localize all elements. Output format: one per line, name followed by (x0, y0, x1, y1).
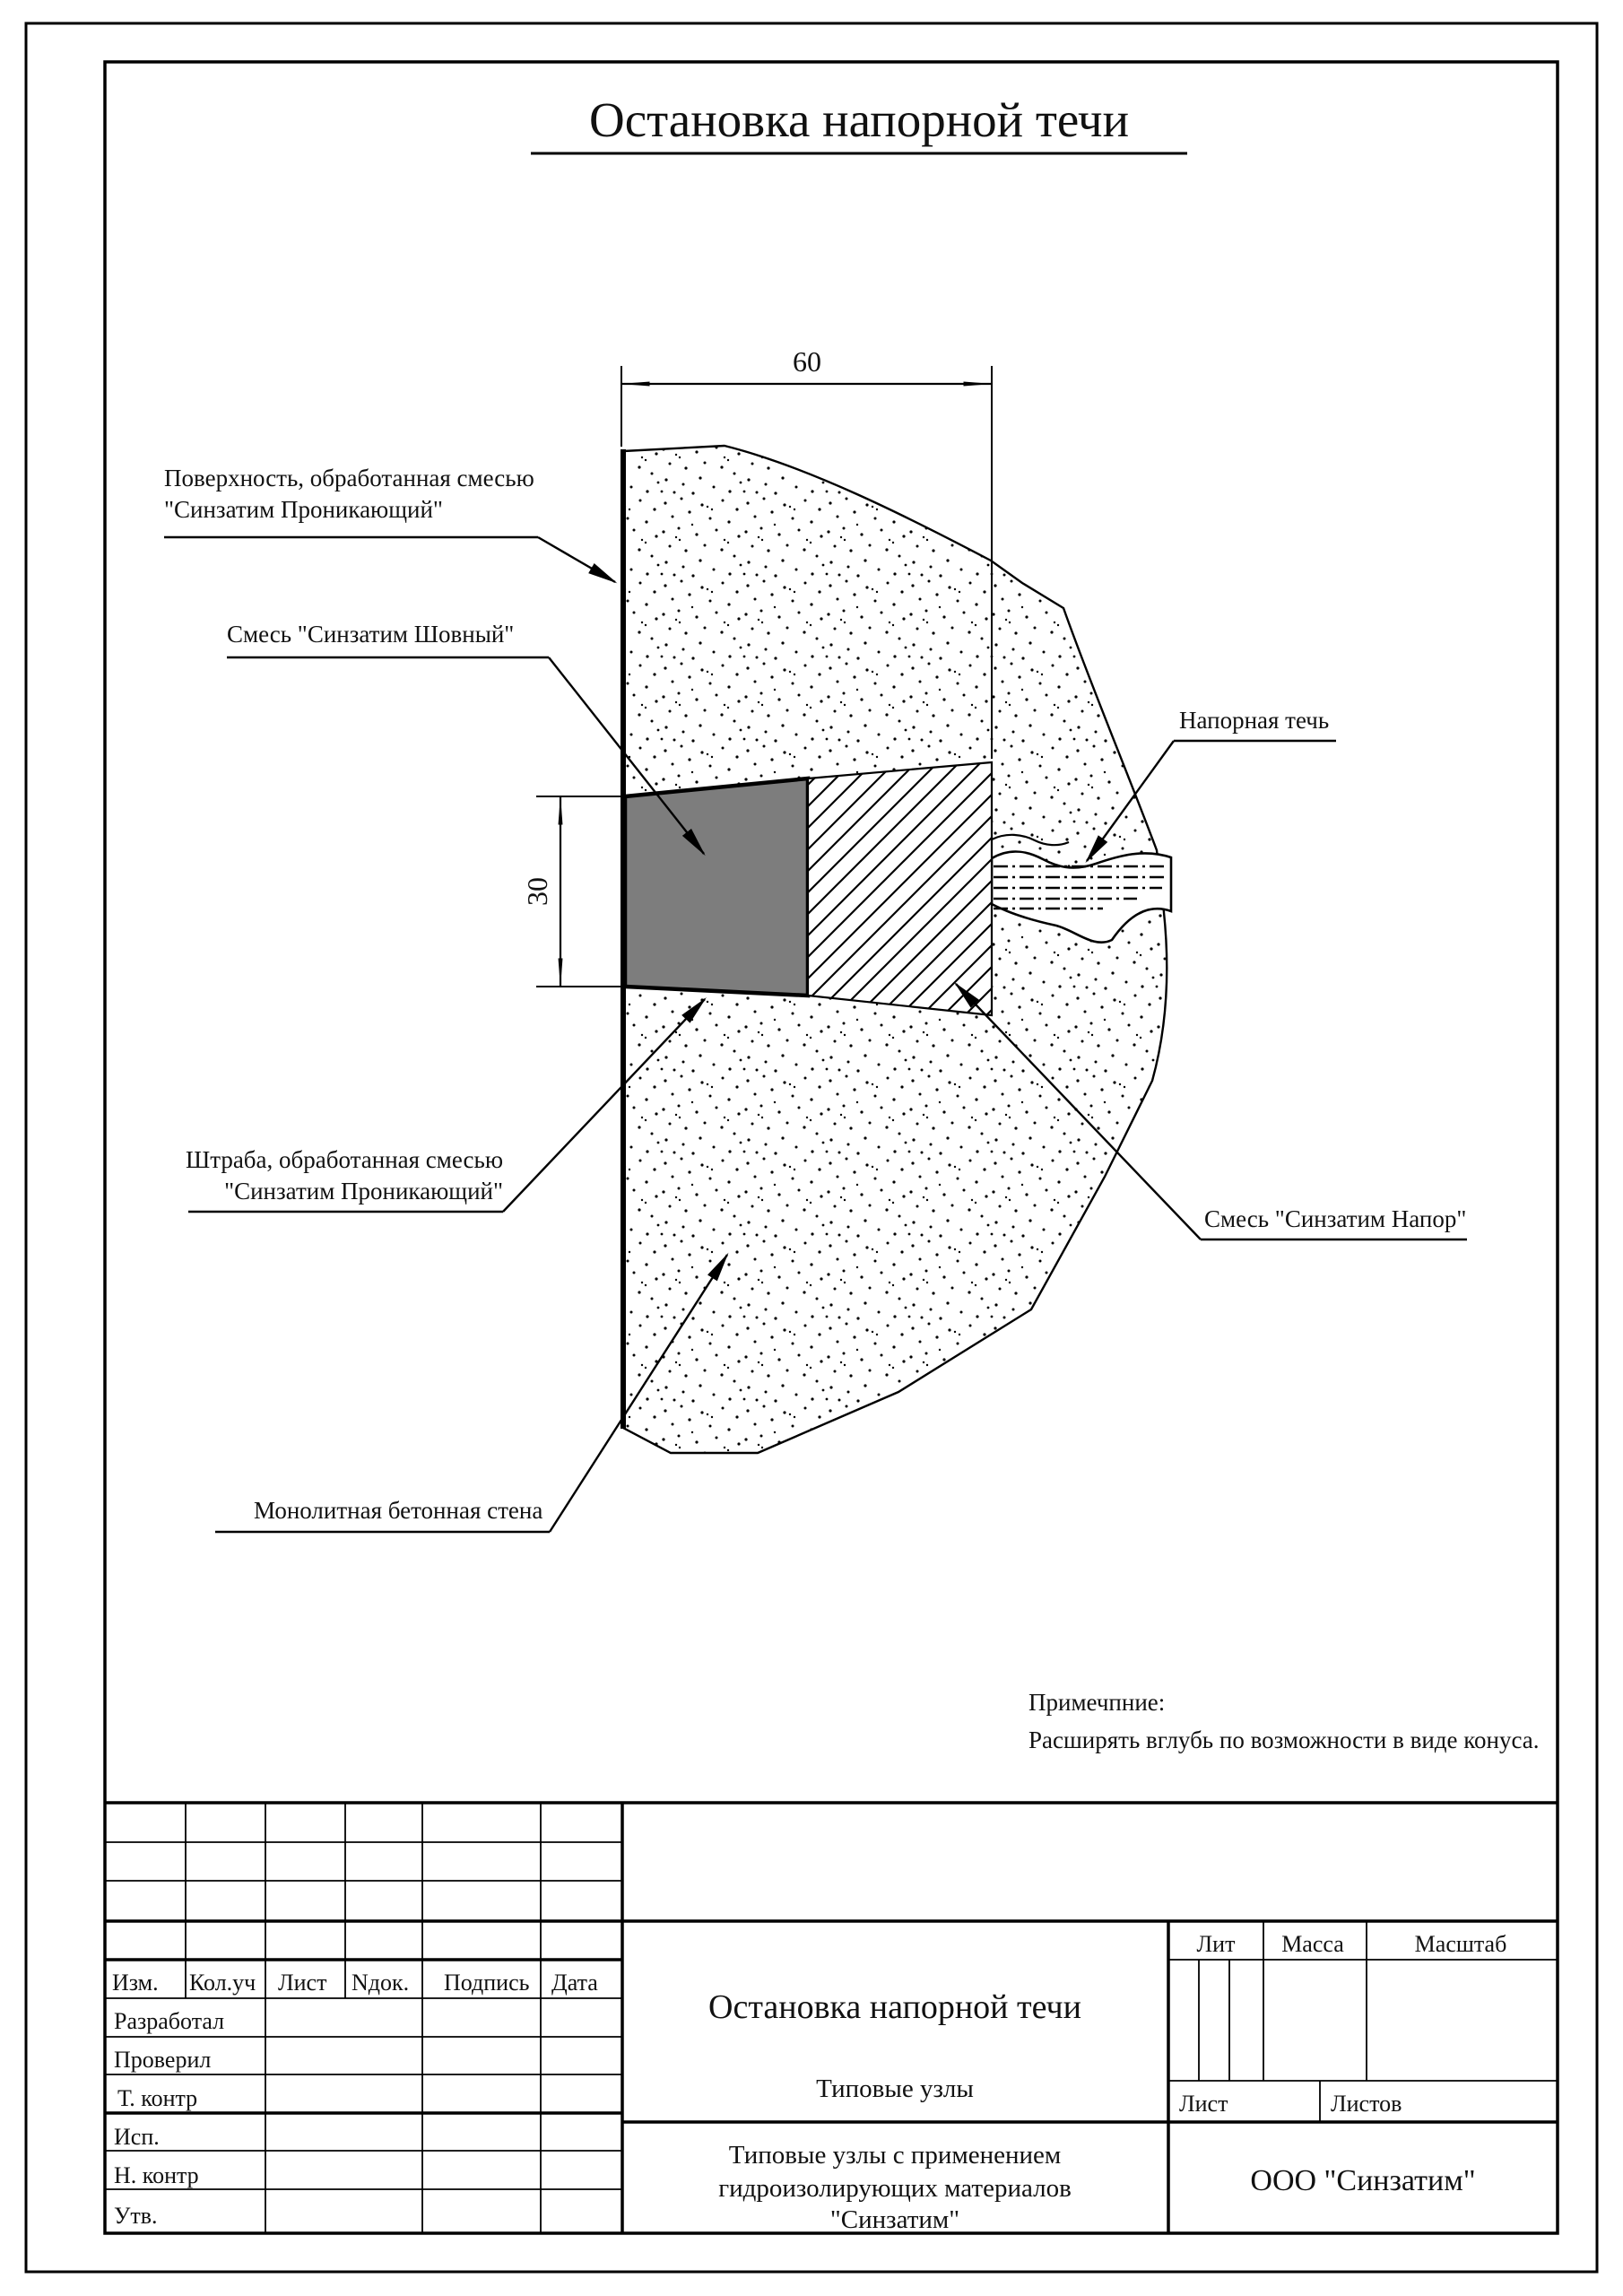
col-ndok: Nдок. (352, 1970, 409, 1996)
doc-subtitle: Типовые узлы (816, 2074, 974, 2103)
pressure-mix-hatch (808, 762, 992, 1015)
lit-label: Лит (1197, 1931, 1236, 1957)
page-title-group: Остановка напорной течи (531, 92, 1187, 153)
label-pressure-mix-text: Смесь "Синзатим Напор" (1204, 1205, 1466, 1232)
dim-60-value: 60 (793, 345, 821, 378)
page-title: Остановка напорной течи (589, 92, 1129, 147)
row-utv: Утв. (114, 2203, 158, 2229)
row-tkontr: Т. контр (117, 2085, 197, 2111)
project-line3: "Синзатим" (830, 2205, 959, 2234)
massa-label: Масса (1281, 1931, 1344, 1957)
col-data: Дата (551, 1970, 598, 1996)
project-line2: гидроизолирующих материалов (718, 2174, 1072, 2203)
label-surface-line2: "Синзатим Проникающий" (164, 496, 443, 523)
col-izm: Изм. (112, 1970, 159, 1996)
listov-label: Листов (1331, 2091, 1402, 2117)
label-wall-text: Монолитная бетонная стена (254, 1497, 542, 1524)
drawing-sheet: Остановка напорной течи 60 (0, 0, 1623, 2296)
label-surface-line1: Поверхность, обработанная смесью (164, 465, 534, 491)
row-isp: Исп. (114, 2124, 160, 2150)
masshtab-label: Масштаб (1415, 1931, 1507, 1957)
col-podpis: Подпись (444, 1970, 530, 1996)
col-list: Лист (278, 1970, 326, 1996)
groove (625, 762, 992, 1015)
seam-mix-area (625, 778, 808, 996)
engineering-drawing: Остановка напорной течи 60 (0, 0, 1623, 2296)
label-groove-line2: "Синзатим Проникающий" (224, 1178, 503, 1205)
row-nkontr: Н. контр (114, 2162, 199, 2188)
label-pressure-leak-text: Напорная течь (1179, 707, 1329, 734)
doc-title: Остановка напорной течи (708, 1988, 1081, 2026)
dim-30-value: 30 (521, 877, 553, 906)
list-label: Лист (1179, 2091, 1228, 2117)
row-proveril: Проверил (114, 2047, 211, 2073)
col-koluch: Кол.уч (189, 1970, 256, 1996)
label-seam-mix-text: Смесь "Синзатим Шовный" (227, 621, 514, 648)
note-line1: Примечпние: (1028, 1689, 1165, 1716)
label-groove-line1: Штраба, обработанная смесью (186, 1146, 503, 1173)
company-name: ООО "Синзатим" (1250, 2164, 1475, 2197)
project-line1: Типовые узлы с применением (729, 2141, 1062, 2170)
note-line2: Расширять вглубь по возможности в виде к… (1028, 1726, 1540, 1753)
row-razrabotal: Разработал (114, 2008, 224, 2034)
